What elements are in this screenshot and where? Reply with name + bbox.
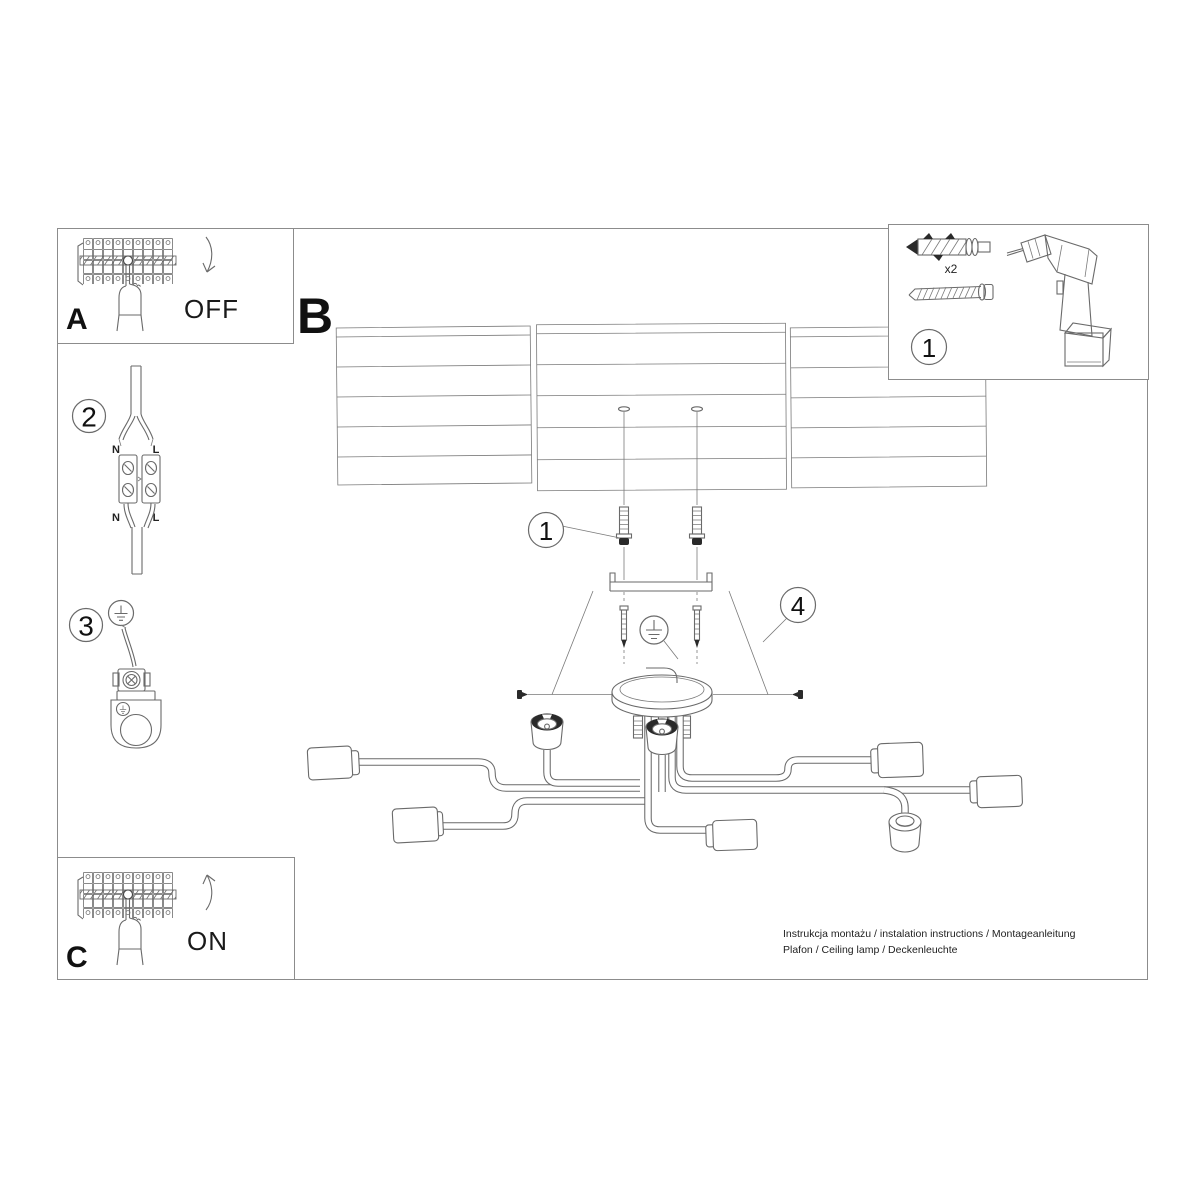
wall-plug-icon bbox=[906, 233, 990, 261]
panel-a-state: OFF bbox=[184, 296, 239, 322]
parts-box-number: 1 bbox=[922, 333, 936, 363]
arm-right-upper bbox=[680, 714, 876, 778]
mounting-plate bbox=[111, 691, 161, 748]
mounting-screw-left bbox=[620, 606, 628, 648]
wire-label-n-bottom: N bbox=[112, 512, 120, 524]
parts-illustration: x2 1 bbox=[889, 225, 1146, 377]
callout-canopy-number: 4 bbox=[791, 591, 805, 621]
wall-plug-right bbox=[690, 507, 705, 545]
canopy-side-screw-left bbox=[517, 690, 528, 699]
wall-plug-left bbox=[617, 507, 632, 545]
canopy bbox=[612, 675, 712, 717]
socket-box-far-right bbox=[969, 775, 1022, 808]
wire-label-l-top: L bbox=[153, 444, 160, 456]
terminal-block bbox=[119, 455, 160, 503]
cable-bottom bbox=[124, 503, 155, 574]
breaker-on-illustration bbox=[58, 870, 293, 976]
step-3-earthing: 3 bbox=[55, 595, 205, 770]
arrow-up-icon bbox=[203, 875, 215, 910]
ceiling-hole-marks bbox=[619, 407, 703, 411]
arrow-down-icon bbox=[203, 237, 215, 272]
earth-terminal bbox=[113, 669, 150, 691]
drill-icon bbox=[1007, 235, 1111, 366]
socket-cylinder bbox=[889, 813, 921, 852]
panel-c-letter: C bbox=[66, 943, 88, 973]
step-3-number: 3 bbox=[78, 611, 94, 642]
socket-box-left-upper bbox=[307, 746, 360, 781]
earth-wire bbox=[121, 625, 136, 667]
canopy-side-screw-right bbox=[792, 690, 803, 699]
footer-captions: Instrukcja montażu / instalation instruc… bbox=[783, 926, 1143, 958]
arm-left-lower bbox=[436, 801, 645, 826]
breaker-off-illustration bbox=[58, 229, 293, 341]
ground-symbol-icon bbox=[109, 601, 134, 626]
socket-box-right-upper bbox=[870, 742, 923, 778]
socket-cup-left bbox=[531, 714, 563, 750]
callout-dowels-number: 1 bbox=[539, 516, 553, 546]
screw-icon bbox=[909, 284, 993, 300]
wire-label-n-top: N bbox=[112, 444, 120, 456]
panel-a-letter: A bbox=[66, 305, 88, 335]
arm-left-cup bbox=[547, 750, 640, 783]
step-2-number: 2 bbox=[81, 402, 97, 433]
panel-a-box: A OFF bbox=[57, 228, 294, 344]
section-b-letter: B bbox=[297, 291, 333, 341]
parts-box: x2 1 bbox=[888, 224, 1149, 380]
cable-top bbox=[119, 366, 153, 446]
dowel-quantity-label: x2 bbox=[945, 262, 958, 276]
panel-c-box: C ON bbox=[57, 857, 295, 980]
mounting-screw-right bbox=[693, 606, 701, 648]
panel-c-state: ON bbox=[187, 928, 228, 954]
socket-box-left-lower bbox=[392, 807, 444, 844]
footer-line-1: Instrukcja montażu / instalation instruc… bbox=[783, 926, 1143, 942]
step-2-wiring: 2 N L N L bbox=[55, 360, 205, 590]
footer-line-2: Plafon / Ceiling lamp / Deckenleuchte bbox=[783, 942, 1143, 958]
instruction-sheet: 1 4 bbox=[0, 0, 1200, 1200]
callout-dowels: 1 bbox=[529, 513, 621, 548]
socket-box-center-bottom bbox=[705, 819, 757, 851]
ground-symbol-icon bbox=[640, 616, 678, 659]
breaker-panel bbox=[78, 238, 176, 285]
callout-canopy: 4 bbox=[763, 588, 816, 643]
breaker-panel bbox=[78, 872, 176, 919]
socket-cup-center bbox=[646, 719, 678, 755]
